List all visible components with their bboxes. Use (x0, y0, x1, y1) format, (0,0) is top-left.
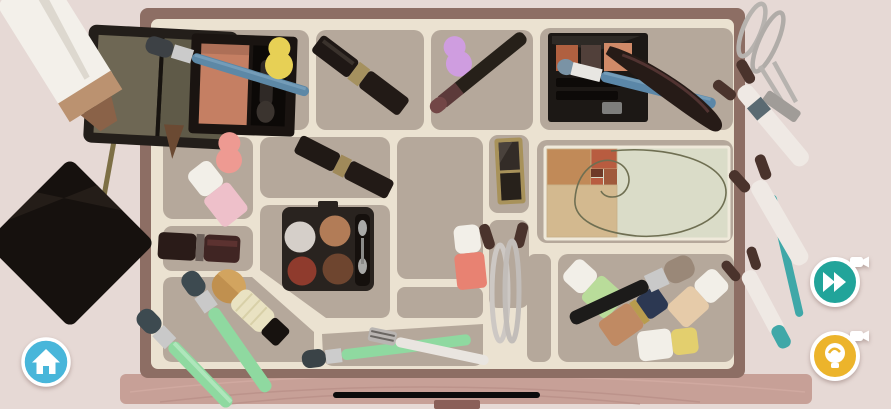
compartment-small-empty[interactable] (397, 287, 483, 318)
compartment-sliver[interactable] (527, 254, 551, 362)
wood-tab (434, 400, 480, 409)
video-ad-badge-icon (850, 257, 869, 268)
hint-button[interactable] (808, 327, 870, 383)
quad-eyeshadow-palette[interactable] (282, 201, 374, 291)
home-button[interactable] (20, 336, 72, 388)
golden-ratio-spiral-card (545, 147, 729, 239)
gold-trim-duo[interactable] (494, 137, 525, 204)
video-ad-badge-icon (850, 331, 869, 342)
game-scene (0, 0, 891, 409)
scene-canvas (0, 0, 891, 409)
skip-button[interactable] (808, 253, 870, 309)
lipstick-small[interactable] (157, 232, 240, 263)
home-indicator[interactable] (333, 392, 540, 398)
